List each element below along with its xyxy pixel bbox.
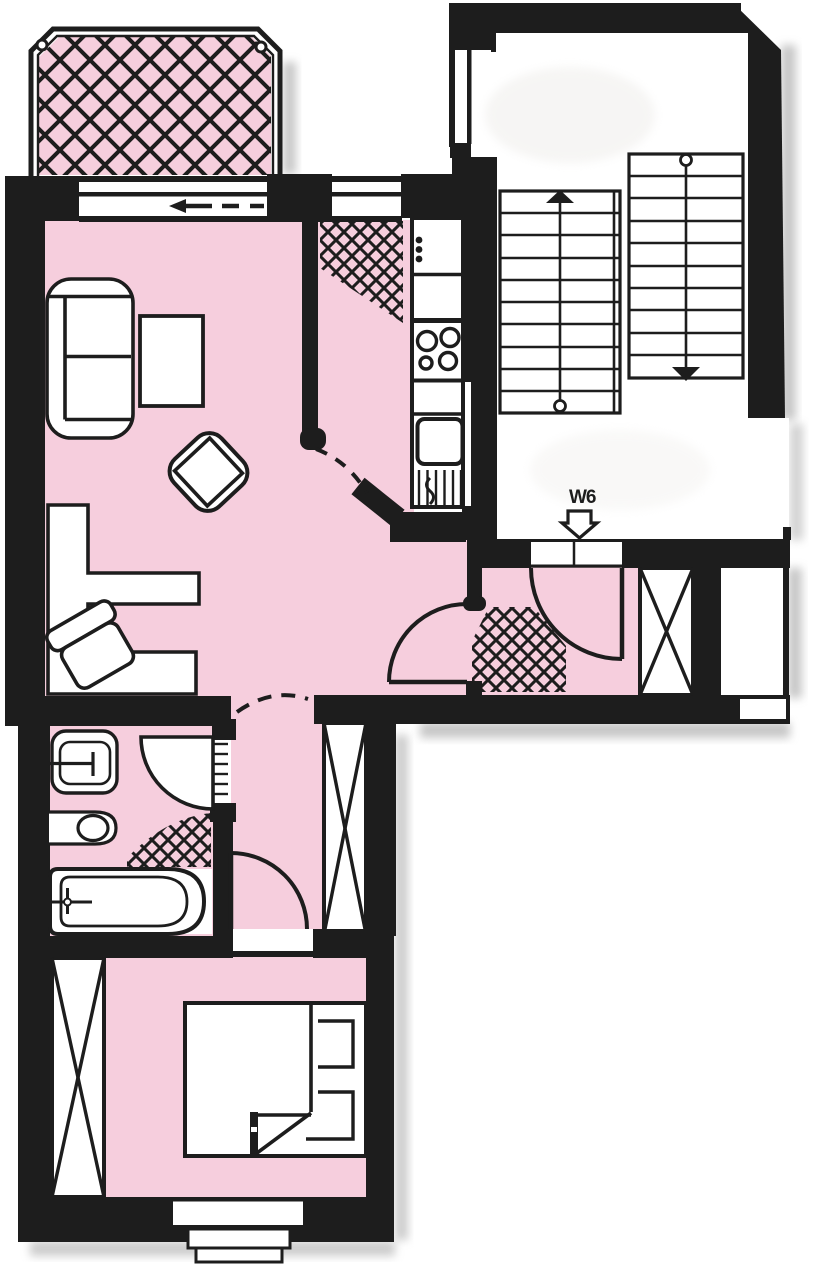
svg-text:W6: W6	[569, 487, 596, 508]
